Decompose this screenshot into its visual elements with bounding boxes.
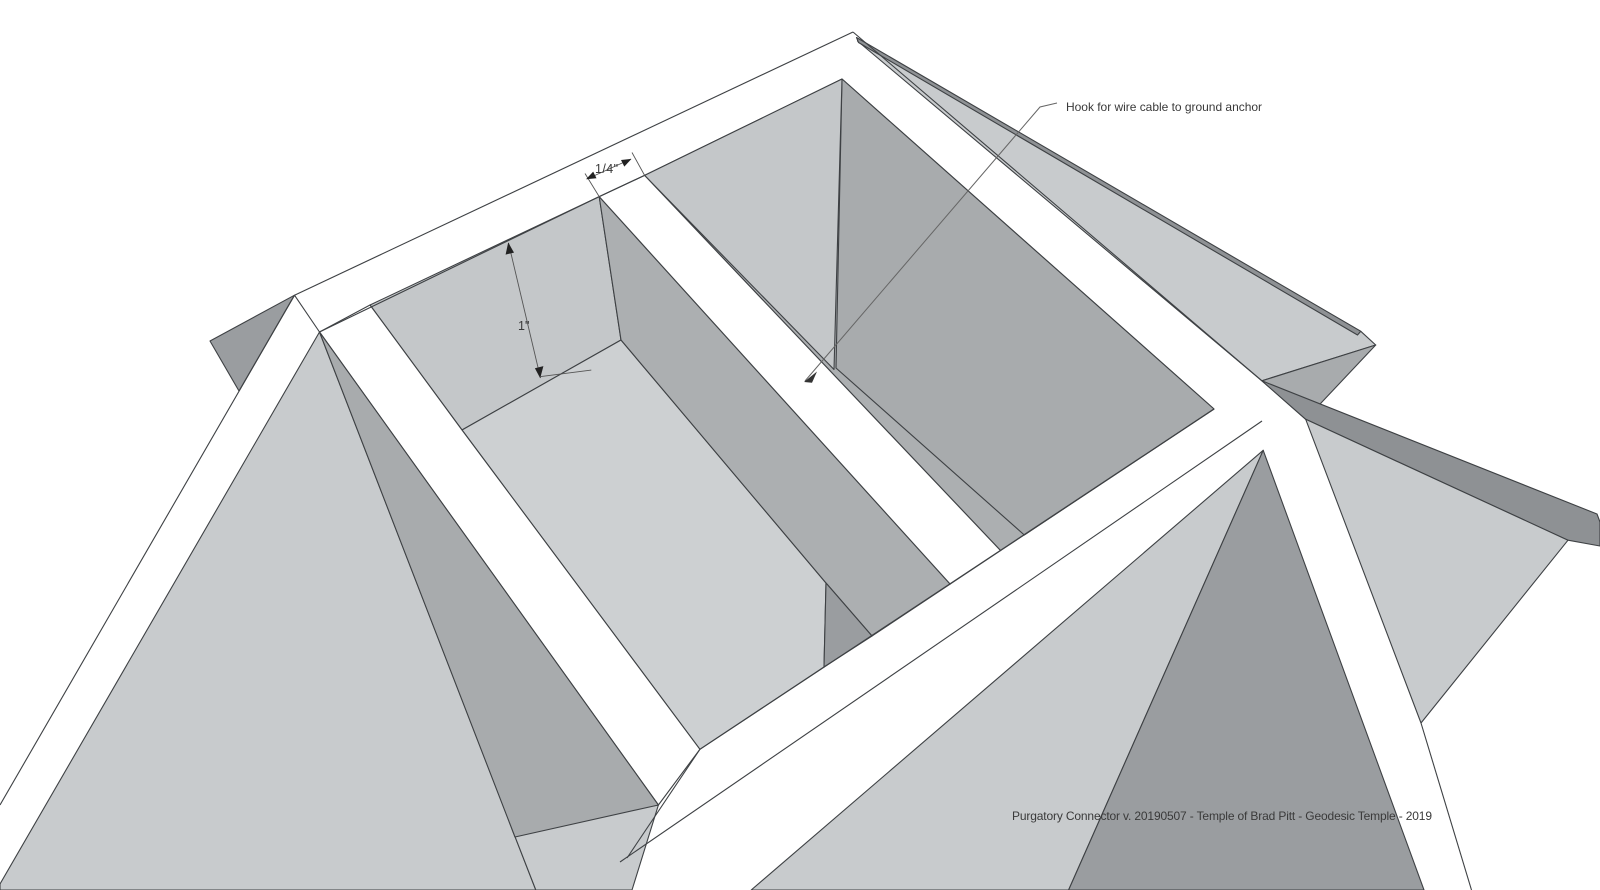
svg-text:1": 1" xyxy=(518,319,529,333)
svg-text:Hook for wire cable to ground: Hook for wire cable to ground anchor xyxy=(1066,100,1262,114)
svg-text:1/4": 1/4" xyxy=(595,162,618,176)
svg-text:Purgatory Connector v. 2019050: Purgatory Connector v. 20190507 - Temple… xyxy=(1012,809,1432,823)
